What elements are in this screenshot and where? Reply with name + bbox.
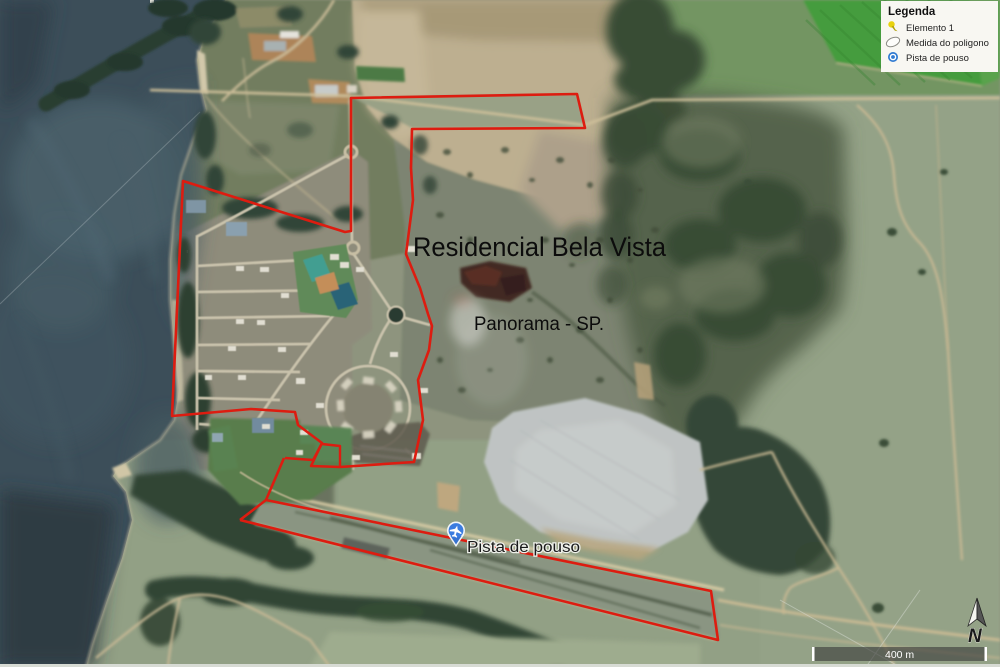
svg-text:Panorama - SP.: Panorama - SP. xyxy=(474,314,604,335)
svg-text:Pista de pouso: Pista de pouso xyxy=(467,539,580,556)
svg-text:Legenda: Legenda xyxy=(888,6,936,18)
svg-text:Pista de pouso: Pista de pouso xyxy=(906,53,969,64)
svg-text:Residencial Bela Vista: Residencial Bela Vista xyxy=(413,232,667,262)
svg-text:400 m: 400 m xyxy=(885,649,914,661)
svg-text:N: N xyxy=(968,626,983,647)
svg-text:Elemento 1: Elemento 1 xyxy=(906,23,954,34)
svg-text:Medida do poligono: Medida do poligono xyxy=(906,38,989,49)
